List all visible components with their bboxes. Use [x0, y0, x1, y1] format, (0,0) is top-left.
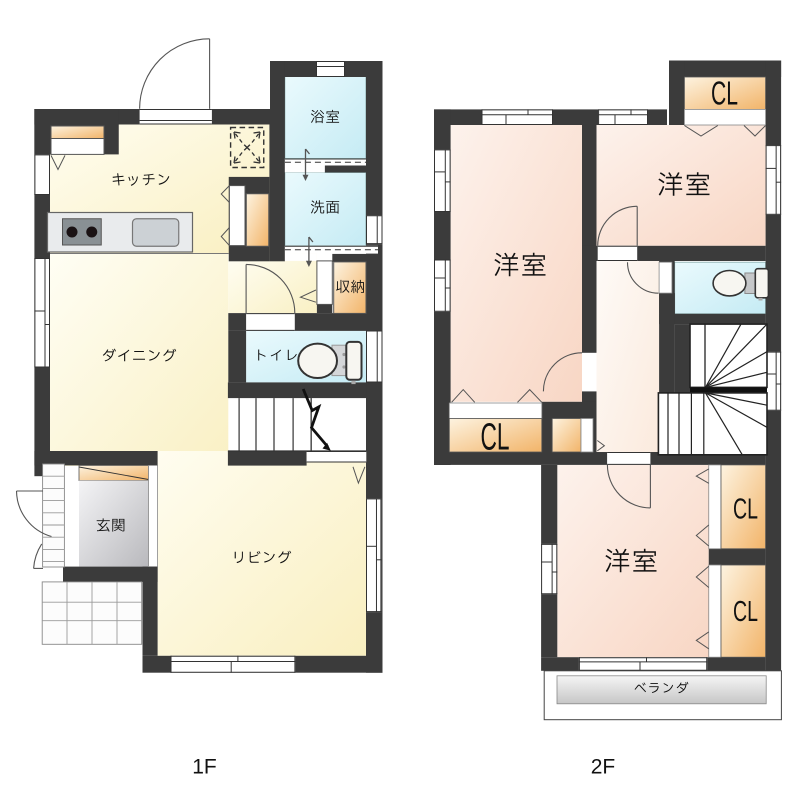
- svg-text:CL: CL: [481, 417, 510, 459]
- svg-text:2F: 2F: [591, 756, 616, 779]
- svg-text:1F: 1F: [192, 756, 217, 779]
- svg-text:CL: CL: [711, 75, 738, 112]
- svg-text:CL: CL: [733, 494, 758, 526]
- svg-text:CL: CL: [733, 596, 758, 628]
